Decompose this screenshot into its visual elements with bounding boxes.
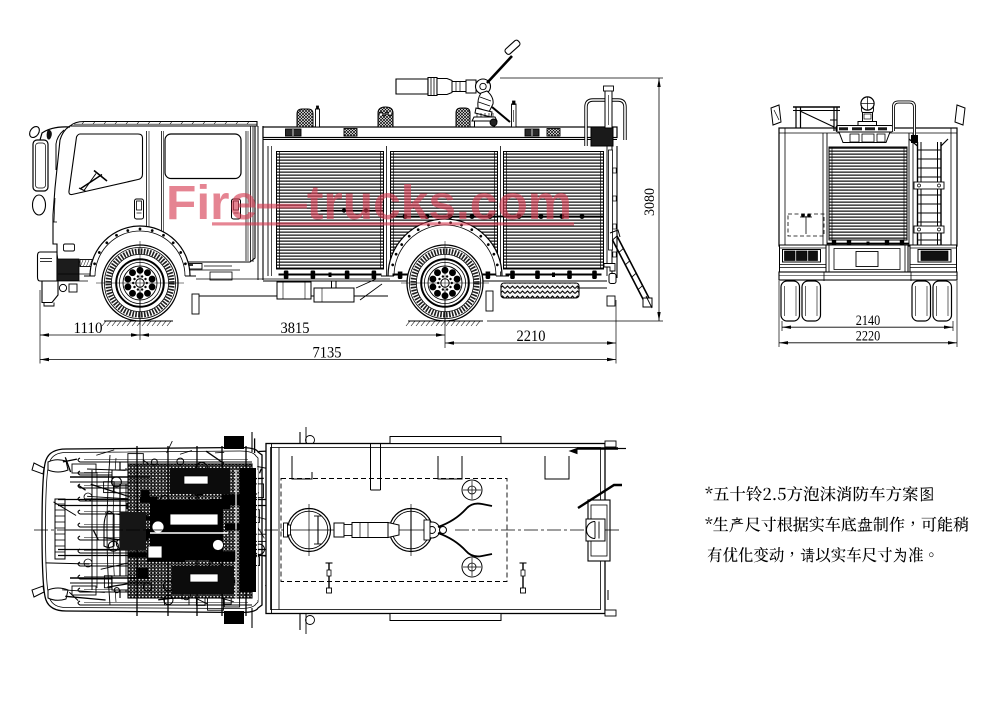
- svg-text:2220: 2220: [856, 328, 881, 344]
- svg-text:Fire—trucks.com: Fire—trucks.com: [166, 177, 572, 230]
- svg-text:7135: 7135: [313, 344, 342, 361]
- svg-text:2140: 2140: [856, 313, 881, 329]
- svg-text:3815: 3815: [281, 320, 310, 337]
- svg-text:2210: 2210: [517, 328, 546, 345]
- svg-text:1110: 1110: [74, 320, 103, 337]
- svg-text:3080: 3080: [642, 188, 658, 216]
